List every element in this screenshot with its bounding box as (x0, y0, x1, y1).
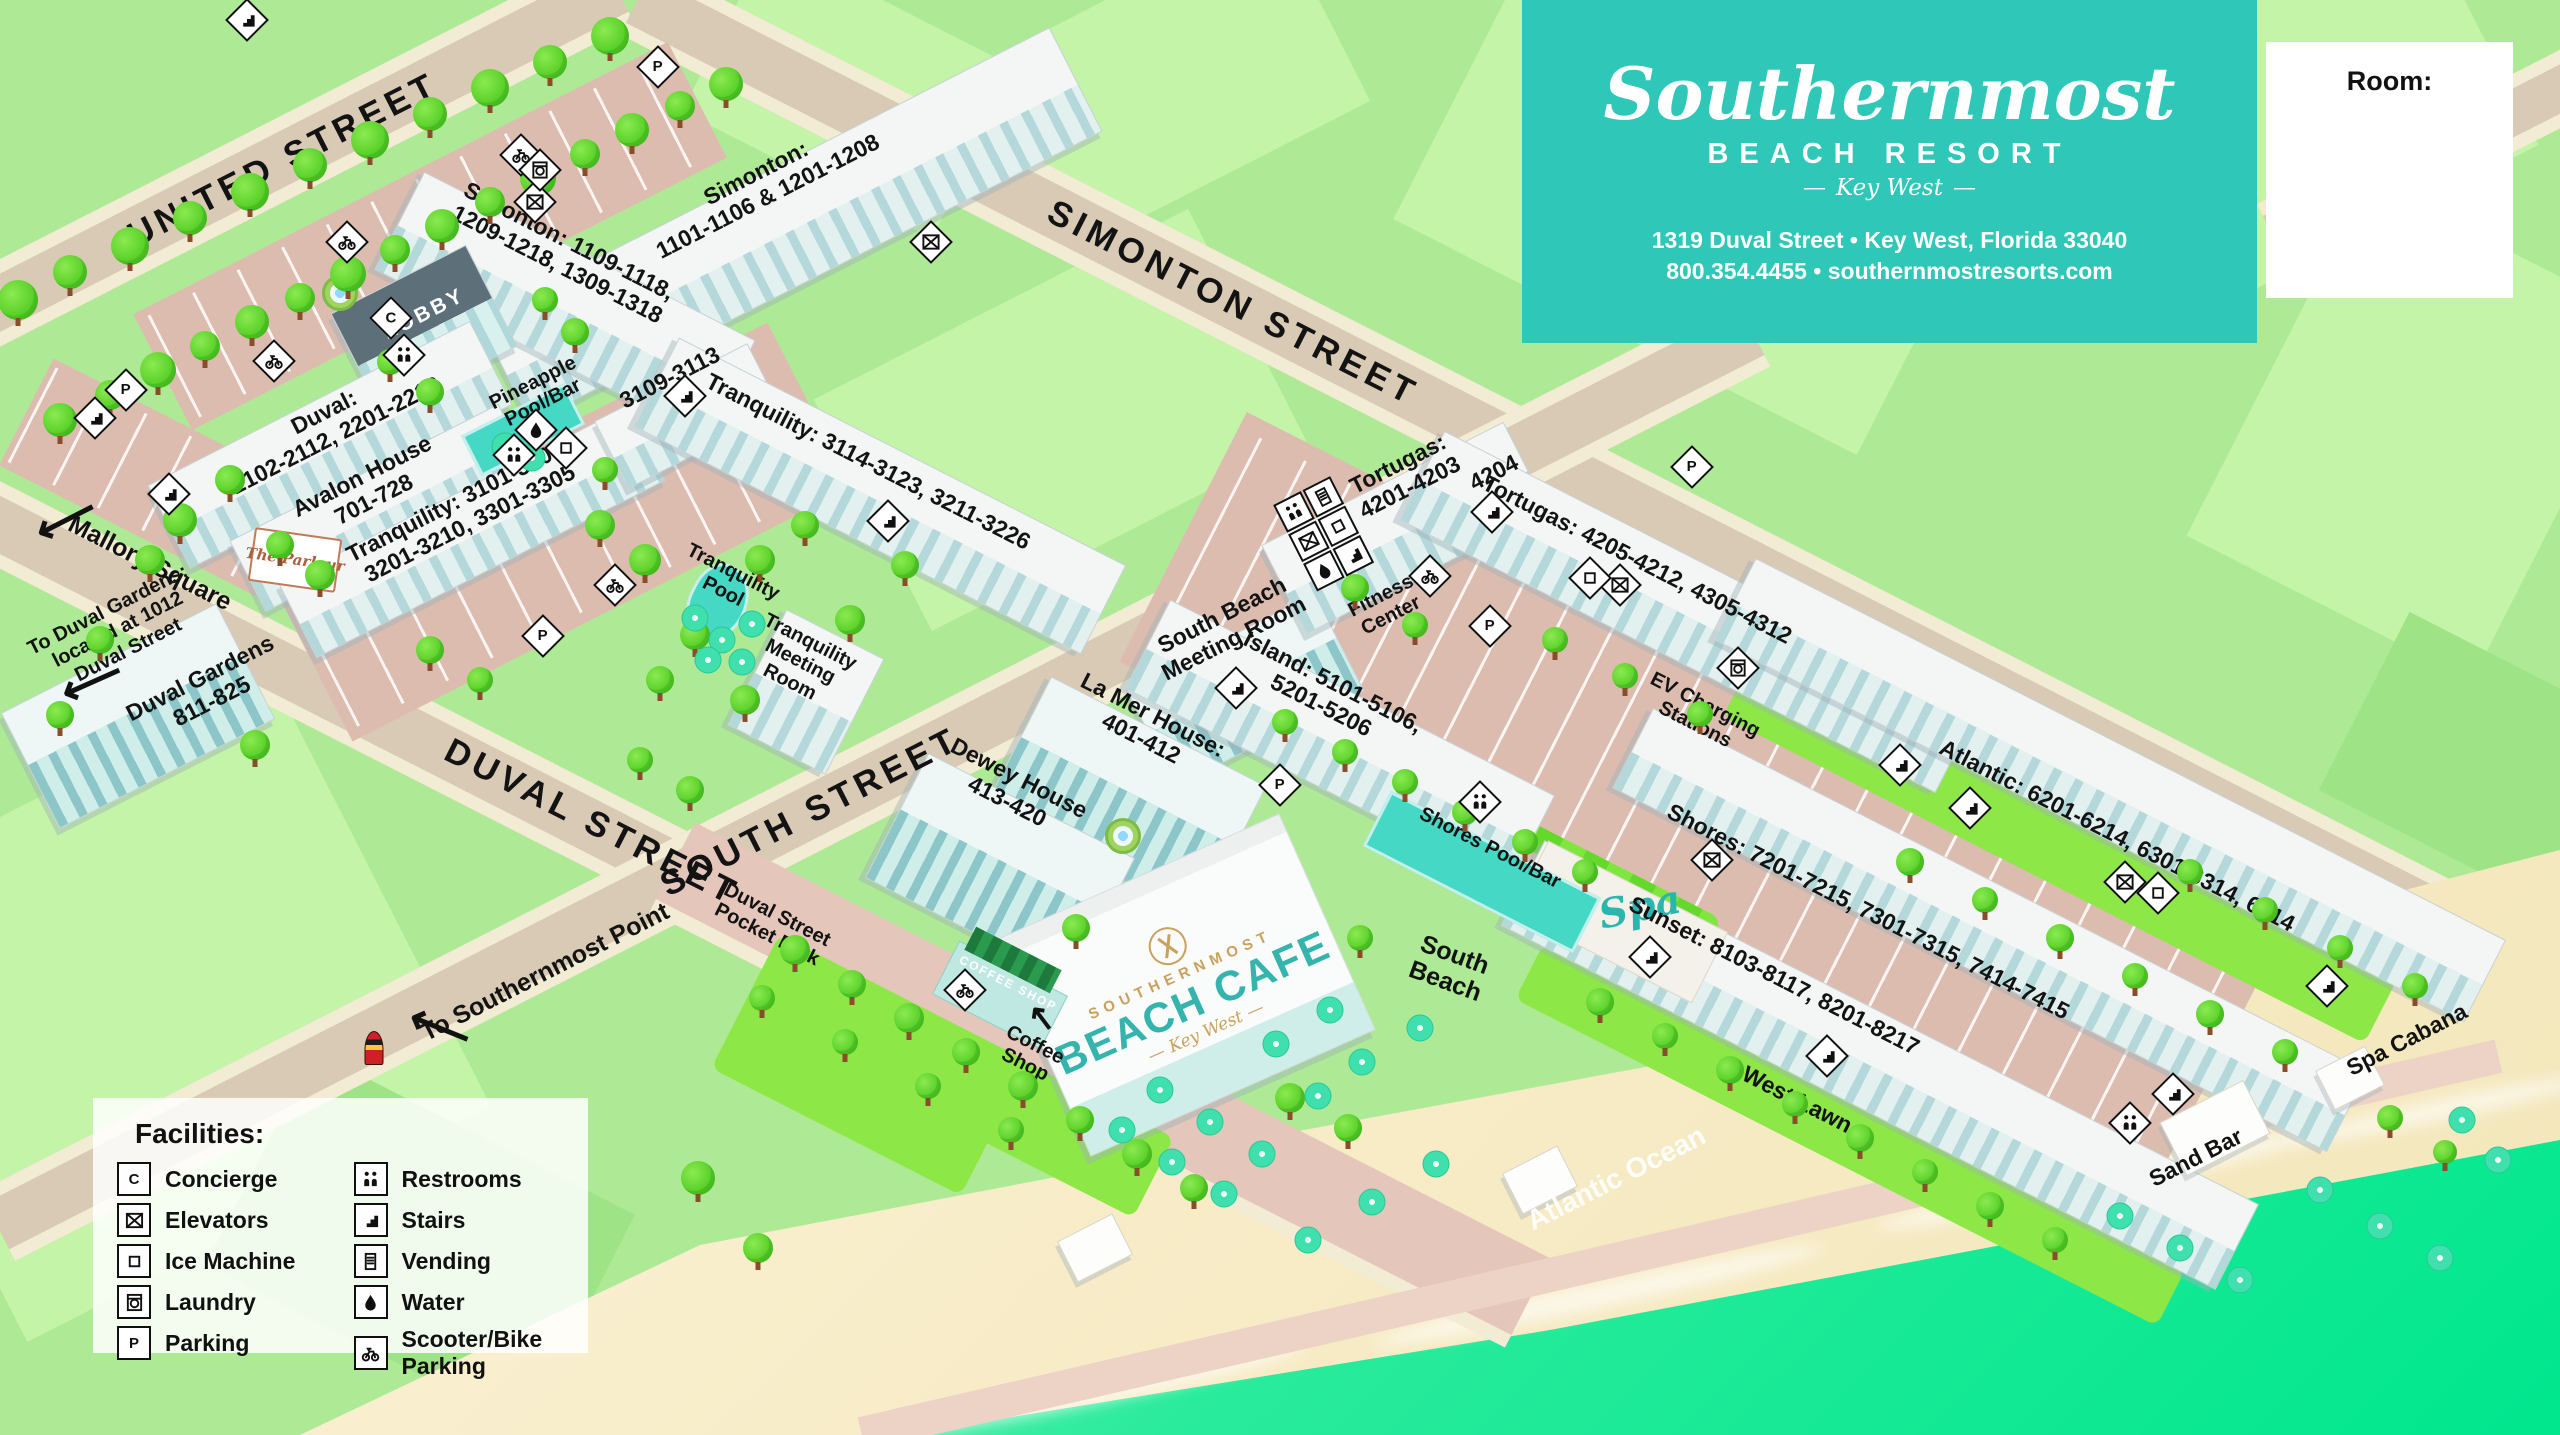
parking-icon: P (117, 1326, 151, 1360)
tree-icon (749, 985, 775, 1011)
umbrella-icon (1147, 1077, 1174, 1104)
tree-icon (709, 67, 743, 101)
tree-icon (743, 1233, 773, 1263)
tree-icon (915, 1073, 941, 1099)
tree-icon (570, 139, 600, 169)
umbrella-icon (1211, 1181, 1238, 1208)
tree-icon (173, 201, 207, 235)
scooter-bike-icon (354, 1336, 388, 1370)
tree-icon (894, 1003, 924, 1033)
umbrella-icon (1159, 1149, 1186, 1176)
facilities-legend: Facilities: CConcierge Elevators Ice Mac… (93, 1098, 588, 1353)
umbrella-icon (2449, 1107, 2476, 1134)
tree-icon (2252, 897, 2278, 923)
tree-icon (681, 1161, 715, 1195)
tree-icon (1062, 914, 1090, 942)
tree-icon (475, 187, 505, 217)
vending-icon (354, 1244, 388, 1278)
cafe-brand-main: BEACH CAFE (1049, 923, 1337, 1083)
tree-icon (730, 685, 760, 715)
legend-item-elevators: Elevators (117, 1203, 328, 1237)
umbrella-icon (2427, 1245, 2454, 1272)
tree-icon (2196, 1000, 2224, 1028)
brand-beach-resort: BEACH RESORT (1707, 138, 2071, 171)
tree-icon (86, 626, 114, 654)
tree-icon (952, 1038, 980, 1066)
tree-icon (1334, 1114, 1362, 1142)
brand-key-west: Key West (1793, 175, 1986, 201)
tree-icon (190, 331, 220, 361)
legend-item-vending: Vending (354, 1244, 565, 1278)
water-icon (354, 1285, 388, 1319)
tree-icon (1896, 848, 1924, 876)
tree-icon (1008, 1071, 1038, 1101)
tree-icon (413, 97, 447, 131)
tree-icon (627, 747, 653, 773)
tree-icon (1275, 1083, 1305, 1113)
legend-item-stairs: Stairs (354, 1203, 565, 1237)
tree-icon (46, 701, 74, 729)
tree-icon (2122, 963, 2148, 989)
tree-icon (1122, 1139, 1152, 1169)
stairs-icon (225, 0, 269, 42)
legend-title: Facilities: (135, 1118, 564, 1150)
umbrella-icon (682, 605, 709, 632)
tree-icon (43, 403, 77, 437)
tree-icon (1392, 769, 1418, 795)
tree-icon (215, 465, 245, 495)
tree-icon (1542, 627, 1568, 653)
tree-icon (2177, 859, 2203, 885)
tree-icon (1512, 829, 1538, 855)
tree-icon (1332, 739, 1358, 765)
tree-icon (591, 17, 629, 55)
umbrella-icon (2167, 1235, 2194, 1262)
legend-item-concierge: CConcierge (117, 1162, 328, 1196)
umbrella-icon (2107, 1203, 2134, 1230)
umbrella-icon (2367, 1213, 2394, 1240)
tree-icon (240, 730, 270, 760)
tree-icon (1716, 1056, 1744, 1084)
umbrella-icon (1407, 1015, 1434, 1042)
tree-icon (1586, 988, 1614, 1016)
room-label: Room: (2347, 66, 2432, 96)
umbrella-icon (729, 649, 756, 676)
tree-icon (629, 544, 661, 576)
tree-icon (561, 318, 589, 346)
tree-icon (380, 235, 410, 265)
tree-icon (2377, 1105, 2403, 1131)
tree-icon (1972, 887, 1998, 913)
parking-icon: P (1670, 445, 1714, 489)
umbrella-icon (695, 647, 722, 674)
brand-script-logo: Southernmost (1603, 58, 2175, 130)
umbrella-icon (1197, 1109, 1224, 1136)
umbrella-icon (1349, 1049, 1376, 1076)
umbrella-icon (1305, 1083, 1332, 1110)
tree-icon (235, 305, 269, 339)
umbrella-icon (1423, 1151, 1450, 1178)
tree-icon (471, 69, 509, 107)
tree-icon (2272, 1039, 2298, 1065)
tree-icon (293, 148, 327, 182)
restrooms-icon (354, 1162, 388, 1196)
umbrella-icon (1359, 1189, 1386, 1216)
tree-icon (1846, 1124, 1874, 1152)
tree-icon (832, 1029, 858, 1055)
tree-icon (1687, 701, 1713, 727)
tree-icon (266, 531, 294, 559)
umbrella-icon (1263, 1031, 1290, 1058)
tree-icon (1272, 709, 1298, 735)
legend-item-scooter: Scooter/Bike Parking (354, 1326, 565, 1380)
stairs-icon (354, 1203, 388, 1237)
brand-address: 1319 Duval Street • Key West, Florida 33… (1652, 227, 2128, 254)
tree-icon (585, 510, 615, 540)
brand-phone-web: 800.354.4455 • southernmostresorts.com (1666, 258, 2113, 285)
tree-icon (1652, 1023, 1678, 1049)
tree-icon (1066, 1106, 1094, 1134)
tree-icon (646, 666, 674, 694)
tree-icon (891, 551, 919, 579)
tree-icon (835, 605, 865, 635)
tree-icon (305, 560, 335, 590)
tree-icon (745, 545, 775, 575)
tree-icon (791, 511, 819, 539)
legend-item-ice: Ice Machine (117, 1244, 328, 1278)
tree-icon (416, 636, 444, 664)
room-number-box: Room: (2266, 42, 2513, 298)
legend-item-restrooms: Restrooms (354, 1162, 565, 1196)
umbrella-icon (1249, 1141, 1276, 1168)
umbrella-icon (1295, 1227, 1322, 1254)
umbrella-icon (2227, 1267, 2254, 1294)
tree-icon (2402, 973, 2428, 999)
tree-icon (532, 287, 558, 313)
concierge-icon: C (117, 1162, 151, 1196)
umbrella-icon (1317, 997, 1344, 1024)
tree-icon (1347, 925, 1373, 951)
fountain (1105, 818, 1141, 854)
tree-icon (2042, 1227, 2068, 1253)
ice-machine-icon (117, 1244, 151, 1278)
tree-icon (140, 352, 176, 388)
tree-icon (111, 227, 149, 265)
tree-icon (1782, 1091, 1808, 1117)
tree-icon (1180, 1174, 1208, 1202)
tree-icon (998, 1117, 1024, 1143)
tree-icon (135, 545, 165, 575)
label-south-beach: South Beach (1405, 929, 1495, 1007)
tree-icon (1976, 1192, 2004, 1220)
tree-icon (665, 91, 695, 121)
brand-header: Southernmost BEACH RESORT Key West 1319 … (1522, 0, 2257, 343)
tree-icon (351, 121, 389, 159)
legend-item-parking: PParking (117, 1326, 328, 1360)
tree-icon (533, 45, 567, 79)
tree-icon (780, 935, 810, 965)
tree-icon (231, 173, 269, 211)
legend-item-water: Water (354, 1285, 565, 1319)
umbrella-icon (1109, 1117, 1136, 1144)
tree-icon (1912, 1159, 1938, 1185)
tree-icon (285, 283, 315, 313)
elevators-icon (117, 1203, 151, 1237)
tree-icon (676, 776, 704, 804)
tree-icon (467, 667, 493, 693)
umbrella-icon (739, 611, 766, 638)
tree-icon (592, 457, 618, 483)
legend-item-laundry: Laundry (117, 1285, 328, 1319)
tree-icon (838, 970, 866, 998)
umbrella-icon (2485, 1147, 2512, 1174)
tree-icon (1612, 663, 1638, 689)
tree-icon (416, 378, 444, 406)
tree-icon (2046, 924, 2074, 952)
tree-icon (2327, 935, 2353, 961)
southernmost-point-buoy (365, 1031, 384, 1065)
umbrella-icon (2307, 1177, 2334, 1204)
tree-icon (53, 255, 87, 289)
laundry-icon (117, 1285, 151, 1319)
tree-icon (425, 209, 459, 243)
tree-icon (615, 113, 649, 147)
tree-icon (1572, 859, 1598, 885)
tree-icon (1402, 612, 1428, 638)
resort-map: SOUTHERNMOST BEACH CAFE Key West UNITED … (0, 0, 2560, 1435)
tree-icon (2433, 1140, 2457, 1164)
